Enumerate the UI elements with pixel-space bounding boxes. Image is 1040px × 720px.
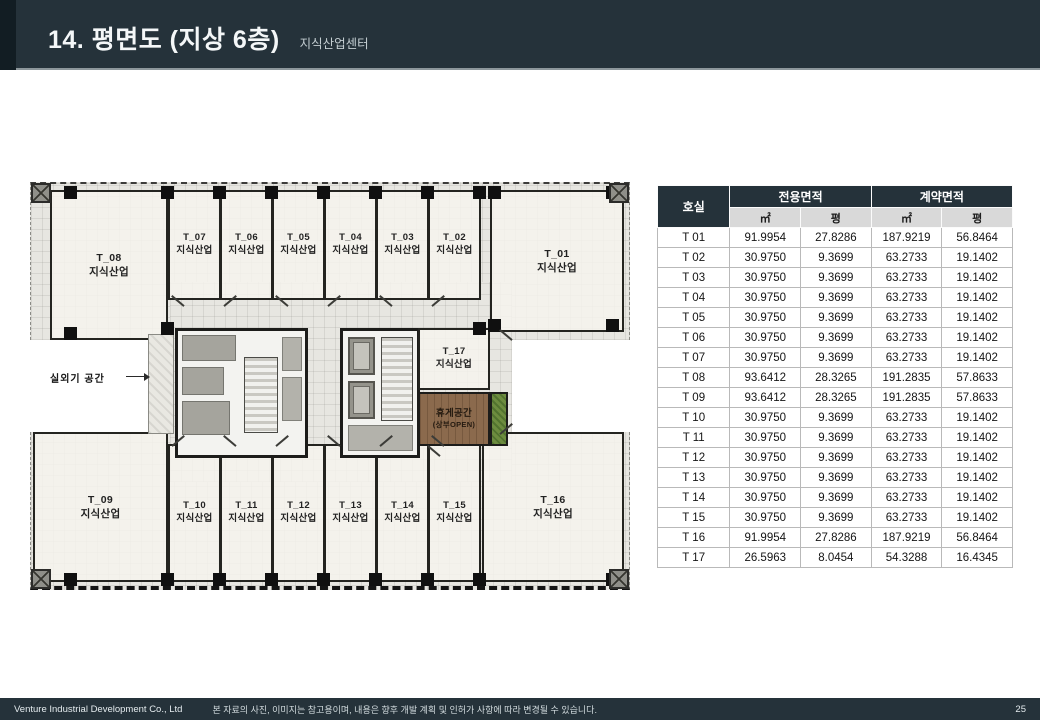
room-id: T_10 <box>176 500 212 513</box>
structural-column <box>161 573 174 586</box>
corner-column <box>31 183 51 203</box>
cell-area-value: 63.2733 <box>871 508 942 528</box>
table-row: T 0993.641228.3265191.283557.8633 <box>658 388 1013 408</box>
structural-column <box>369 186 382 199</box>
cell-area-value: 19.1402 <box>942 308 1013 328</box>
cell-area-value: 19.1402 <box>942 408 1013 428</box>
col-group-contract-area: 계약면적 <box>871 186 1012 208</box>
footer-disclaimer: 본 자료의 사진, 이미지는 참고용이며, 내용은 향후 개발 계획 및 인허가… <box>212 703 597 716</box>
cell-area-value: 27.8286 <box>801 528 872 548</box>
outdoor-unit-leader-line <box>126 376 146 377</box>
corner-column <box>31 569 51 589</box>
cell-area-value: 91.9954 <box>730 228 801 248</box>
cell-room-no: T 05 <box>658 308 730 328</box>
room-type: 지식산업 <box>537 261 577 275</box>
rest-area-sublabel: (상부OPEN) <box>433 420 475 430</box>
plant-strip <box>490 392 508 446</box>
cell-area-value: 30.9750 <box>730 348 801 368</box>
cell-area-value: 30.9750 <box>730 248 801 268</box>
structural-column <box>265 186 278 199</box>
wc-stalls <box>182 367 224 395</box>
cell-room-no: T 03 <box>658 268 730 288</box>
service-shaft <box>282 337 302 371</box>
cell-area-value: 63.2733 <box>871 328 942 348</box>
area-table-wrap: 호실 전용면적 계약면적 ㎡ 평 ㎡ 평 T 0191.995427.82861… <box>657 185 1013 568</box>
cell-room-no: T 16 <box>658 528 730 548</box>
cell-room-no: T 06 <box>658 328 730 348</box>
table-row: T 0630.97509.369963.273319.1402 <box>658 328 1013 348</box>
header-text-group: 14. 평면도 (지상 6층) 지식산업센터 <box>48 0 369 70</box>
col-group-exclusive-area: 전용면적 <box>730 186 871 208</box>
cell-area-value: 191.2835 <box>871 388 942 408</box>
slide-footer: Venture Industrial Development Co., Ltd … <box>0 698 1040 720</box>
table-body: T 0191.995427.8286187.921956.8464T 0230.… <box>658 228 1013 568</box>
table-row: T 1130.97509.369963.273319.1402 <box>658 428 1013 448</box>
table-row: T 0230.97509.369963.273319.1402 <box>658 248 1013 268</box>
room-id: T_05 <box>280 232 316 245</box>
elevator-cab <box>353 342 370 370</box>
cell-area-value: 9.3699 <box>801 328 872 348</box>
cell-area-value: 19.1402 <box>942 508 1013 528</box>
cell-area-value: 30.9750 <box>730 408 801 428</box>
cell-area-value: 19.1402 <box>942 288 1013 308</box>
cell-area-value: 19.1402 <box>942 248 1013 268</box>
cell-area-value: 16.4345 <box>942 548 1013 568</box>
cell-area-value: 19.1402 <box>942 448 1013 468</box>
room-t01: T_01지식산업 <box>490 190 624 332</box>
structural-column <box>473 573 486 586</box>
room-type: 지식산업 <box>332 513 368 526</box>
structural-column <box>317 573 330 586</box>
cell-area-value: 30.9750 <box>730 468 801 488</box>
cell-room-no: T 15 <box>658 508 730 528</box>
elevator <box>348 337 375 375</box>
cell-area-value: 9.3699 <box>801 288 872 308</box>
room-type: 지식산업 <box>533 507 573 521</box>
room-t17: T_17지식산업 <box>418 328 490 390</box>
cell-area-value: 8.0454 <box>801 548 872 568</box>
room-id: T_08 <box>89 251 129 265</box>
outdoor-unit-area <box>148 334 174 434</box>
cell-area-value: 30.9750 <box>730 428 801 448</box>
room-t04: T_04지식산업 <box>324 190 377 300</box>
elevator-cab <box>353 386 370 414</box>
room-t14: T_14지식산업 <box>376 444 429 582</box>
structural-column <box>161 322 174 335</box>
cell-area-value: 56.8464 <box>942 228 1013 248</box>
col-header-room: 호실 <box>658 186 730 228</box>
room-t10: T_10지식산업 <box>168 444 221 582</box>
cell-area-value: 63.2733 <box>871 348 942 368</box>
cell-room-no: T 01 <box>658 228 730 248</box>
outdoor-unit-label: 실외기 공간 <box>50 370 105 385</box>
cell-area-value: 27.8286 <box>801 228 872 248</box>
structural-column <box>317 186 330 199</box>
cell-area-value: 19.1402 <box>942 328 1013 348</box>
structural-column <box>64 327 77 340</box>
page-number: 25 <box>1015 704 1026 715</box>
cell-area-value: 63.2733 <box>871 248 942 268</box>
table-row: T 0430.97509.369963.273319.1402 <box>658 288 1013 308</box>
room-type: 지식산업 <box>280 245 316 258</box>
room-t06: T_06지식산업 <box>220 190 273 300</box>
cell-area-value: 19.1402 <box>942 428 1013 448</box>
cell-area-value: 9.3699 <box>801 408 872 428</box>
cell-area-value: 30.9750 <box>730 268 801 288</box>
room-type: 지식산업 <box>384 245 420 258</box>
unit-header-pyeong: 평 <box>942 208 1013 228</box>
unit-header-pyeong: 평 <box>801 208 872 228</box>
cell-room-no: T 09 <box>658 388 730 408</box>
cell-area-value: 19.1402 <box>942 468 1013 488</box>
cell-area-value: 63.2733 <box>871 488 942 508</box>
cell-room-no: T 04 <box>658 288 730 308</box>
structural-column <box>265 573 278 586</box>
room-type: 지식산업 <box>89 265 129 279</box>
corner-column <box>609 569 629 589</box>
rest-area: 휴게공간(상부OPEN) <box>418 392 490 446</box>
room-id: T_12 <box>280 500 316 513</box>
cell-area-value: 63.2733 <box>871 448 942 468</box>
room-t03: T_03지식산업 <box>376 190 429 300</box>
room-id: T_13 <box>332 500 368 513</box>
room-id: T_09 <box>81 493 121 507</box>
room-id: T_07 <box>176 232 212 245</box>
stairs <box>381 337 413 421</box>
cell-area-value: 63.2733 <box>871 468 942 488</box>
structural-column <box>488 186 501 199</box>
room-type: 지식산업 <box>228 513 264 526</box>
cell-area-value: 57.8633 <box>942 388 1013 408</box>
room-t15: T_15지식산업 <box>428 444 481 582</box>
cell-area-value: 93.6412 <box>730 368 801 388</box>
cell-area-value: 9.3699 <box>801 448 872 468</box>
cell-area-value: 9.3699 <box>801 428 872 448</box>
cell-area-value: 19.1402 <box>942 268 1013 288</box>
cell-area-value: 187.9219 <box>871 528 942 548</box>
corner-column <box>609 183 629 203</box>
table-row: T 1430.97509.369963.273319.1402 <box>658 488 1013 508</box>
room-t02: T_02지식산업 <box>428 190 481 300</box>
room-t05: T_05지식산업 <box>272 190 325 300</box>
cell-area-value: 30.9750 <box>730 488 801 508</box>
slide: 14. 평면도 (지상 6층) 지식산업센터 T_08지식산업 T_07지식산업… <box>0 0 1040 720</box>
structural-column <box>606 319 619 332</box>
structural-column <box>421 573 434 586</box>
room-type: 지식산업 <box>436 359 472 372</box>
footer-company: Venture Industrial Development Co., Ltd <box>14 704 182 715</box>
room-id: T_03 <box>384 232 420 245</box>
outdoor-unit-arrow <box>144 373 150 381</box>
cell-area-value: 28.3265 <box>801 388 872 408</box>
cell-area-value: 63.2733 <box>871 288 942 308</box>
room-type: 지식산업 <box>280 513 316 526</box>
cell-area-value: 19.1402 <box>942 488 1013 508</box>
service-shaft <box>348 425 413 451</box>
cell-area-value: 30.9750 <box>730 288 801 308</box>
slide-header: 14. 평면도 (지상 6층) 지식산업센터 <box>0 0 1040 70</box>
cell-area-value: 63.2733 <box>871 408 942 428</box>
cell-room-no: T 14 <box>658 488 730 508</box>
room-id: T_01 <box>537 247 577 261</box>
stairs <box>244 357 278 433</box>
room-id: T_14 <box>384 500 420 513</box>
room-type: 지식산업 <box>436 245 472 258</box>
cell-area-value: 9.3699 <box>801 488 872 508</box>
room-type: 지식산업 <box>436 513 472 526</box>
structural-column <box>64 573 77 586</box>
table-row: T 0730.97509.369963.273319.1402 <box>658 348 1013 368</box>
structural-column <box>421 186 434 199</box>
elevator <box>348 381 375 419</box>
room-type: 지식산업 <box>176 245 212 258</box>
core-block-right <box>340 328 420 458</box>
cell-area-value: 30.9750 <box>730 508 801 528</box>
cell-area-value: 63.2733 <box>871 308 942 328</box>
cell-room-no: T 07 <box>658 348 730 368</box>
cell-area-value: 63.2733 <box>871 428 942 448</box>
table-header-row: 호실 전용면적 계약면적 <box>658 186 1013 208</box>
area-table: 호실 전용면적 계약면적 ㎡ 평 ㎡ 평 T 0191.995427.82861… <box>657 185 1013 568</box>
room-id: T_06 <box>228 232 264 245</box>
service-shaft <box>282 377 302 421</box>
structural-column <box>473 186 486 199</box>
cell-area-value: 9.3699 <box>801 348 872 368</box>
room-id: T_15 <box>436 500 472 513</box>
table-row: T 1230.97509.369963.273319.1402 <box>658 448 1013 468</box>
room-t16: T_16지식산업 <box>482 432 624 582</box>
header-accent-strip <box>0 0 16 70</box>
cell-area-value: 91.9954 <box>730 528 801 548</box>
structural-column <box>473 322 486 335</box>
room-id: T_04 <box>332 232 368 245</box>
room-id: T_11 <box>228 500 264 513</box>
room-t08: T_08지식산업 <box>50 190 168 340</box>
room-t13: T_13지식산업 <box>324 444 377 582</box>
cell-area-value: 57.8633 <box>942 368 1013 388</box>
core-block-left <box>175 328 308 458</box>
cell-room-no: T 11 <box>658 428 730 448</box>
table-row: T 1030.97509.369963.273319.1402 <box>658 408 1013 428</box>
cell-room-no: T 17 <box>658 548 730 568</box>
room-t09: T_09지식산업 <box>33 432 168 582</box>
table-row: T 0191.995427.8286187.921956.8464 <box>658 228 1013 248</box>
structural-column <box>64 186 77 199</box>
cell-area-value: 9.3699 <box>801 268 872 288</box>
room-type: 지식산업 <box>332 245 368 258</box>
table-row: T 1691.995427.8286187.921956.8464 <box>658 528 1013 548</box>
cell-area-value: 191.2835 <box>871 368 942 388</box>
cell-area-value: 187.9219 <box>871 228 942 248</box>
cell-area-value: 9.3699 <box>801 468 872 488</box>
table-row: T 0530.97509.369963.273319.1402 <box>658 308 1013 328</box>
cell-area-value: 63.2733 <box>871 268 942 288</box>
floor-plan: T_08지식산업 T_07지식산업 T_06지식산업 T_05지식산업 T_04… <box>30 182 630 590</box>
unit-header-m2: ㎡ <box>871 208 942 228</box>
room-t11: T_11지식산업 <box>220 444 273 582</box>
structural-column <box>161 186 174 199</box>
cell-area-value: 9.3699 <box>801 308 872 328</box>
cell-area-value: 30.9750 <box>730 328 801 348</box>
cell-area-value: 9.3699 <box>801 248 872 268</box>
room-t12: T_12지식산업 <box>272 444 325 582</box>
wc-stalls <box>182 335 236 361</box>
cell-room-no: T 08 <box>658 368 730 388</box>
structural-column <box>369 573 382 586</box>
cell-room-no: T 12 <box>658 448 730 468</box>
room-id: T_02 <box>436 232 472 245</box>
room-id: T_16 <box>533 493 573 507</box>
cell-area-value: 56.8464 <box>942 528 1013 548</box>
cell-room-no: T 10 <box>658 408 730 428</box>
cell-area-value: 30.9750 <box>730 448 801 468</box>
rest-area-label: 휴게공간 <box>433 408 475 421</box>
cell-area-value: 19.1402 <box>942 348 1013 368</box>
cell-area-value: 26.5963 <box>730 548 801 568</box>
table-row: T 1530.97509.369963.273319.1402 <box>658 508 1013 528</box>
cell-area-value: 30.9750 <box>730 308 801 328</box>
cell-area-value: 93.6412 <box>730 388 801 408</box>
cell-area-value: 54.3288 <box>871 548 942 568</box>
room-type: 지식산업 <box>228 245 264 258</box>
wc-stalls <box>182 401 230 435</box>
table-row: T 0893.641228.3265191.283557.8633 <box>658 368 1013 388</box>
cell-area-value: 28.3265 <box>801 368 872 388</box>
table-row: T 1330.97509.369963.273319.1402 <box>658 468 1013 488</box>
table-row: T 0330.97509.369963.273319.1402 <box>658 268 1013 288</box>
cell-room-no: T 02 <box>658 248 730 268</box>
room-type: 지식산업 <box>384 513 420 526</box>
room-t07: T_07지식산업 <box>168 190 221 300</box>
cell-area-value: 9.3699 <box>801 508 872 528</box>
table-row: T 1726.59638.045454.328816.4345 <box>658 548 1013 568</box>
cell-room-no: T 13 <box>658 468 730 488</box>
room-id: T_17 <box>436 346 472 359</box>
structural-column <box>213 186 226 199</box>
room-type: 지식산업 <box>176 513 212 526</box>
unit-header-m2: ㎡ <box>730 208 801 228</box>
structural-column <box>213 573 226 586</box>
room-type: 지식산업 <box>81 507 121 521</box>
